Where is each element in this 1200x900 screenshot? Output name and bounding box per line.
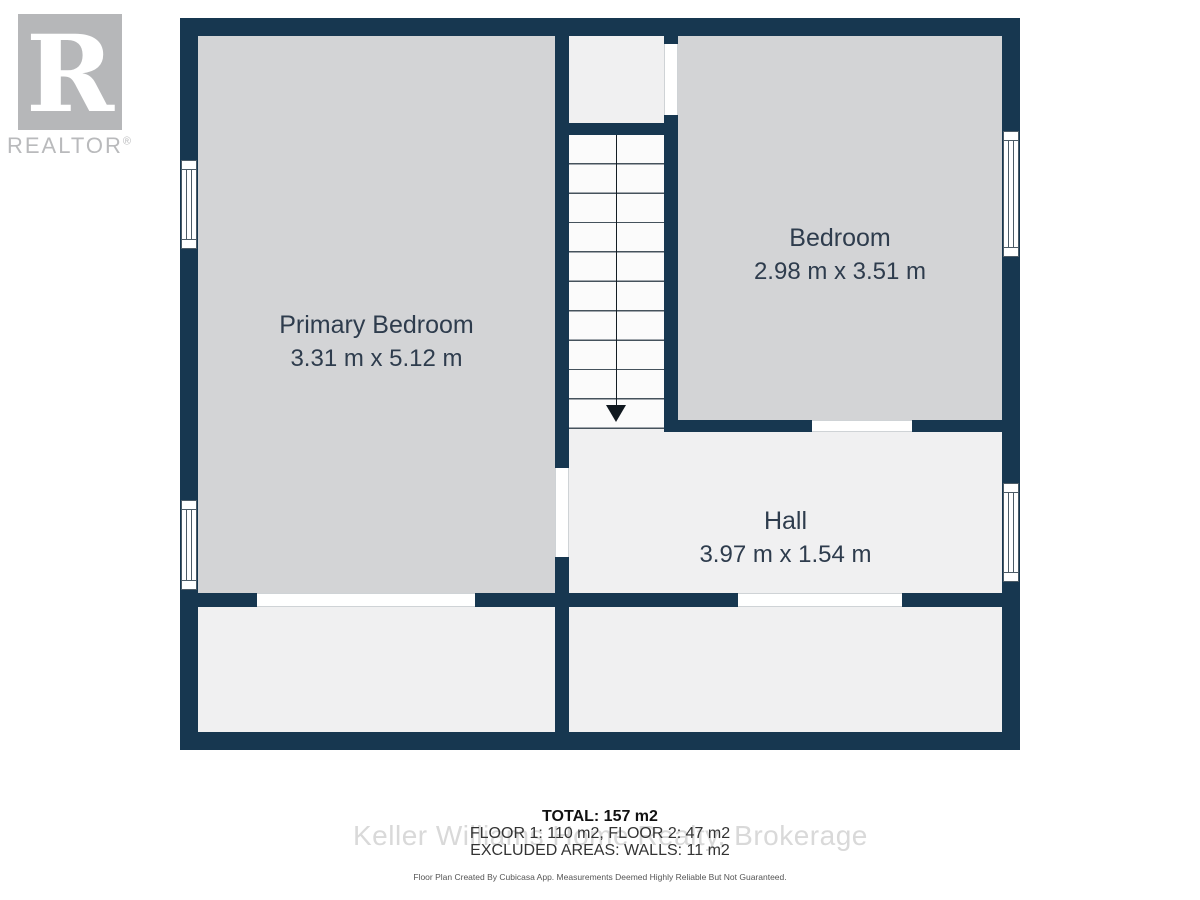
- window-right-lower: [1003, 483, 1019, 582]
- room-name: Hall: [569, 504, 1002, 538]
- registered-mark: ®: [123, 136, 131, 148]
- floor-plan: Primary Bedroom 3.31 m x 5.12 m Bedroom …: [180, 18, 1020, 750]
- window-left-upper: [181, 160, 197, 249]
- stair-center-line: [616, 135, 618, 407]
- wall-top: [180, 18, 1020, 36]
- wall-right: [1002, 18, 1020, 750]
- wall-hall-bottom-left: [568, 593, 738, 607]
- door-opening-bedroom: [812, 420, 912, 432]
- summary-total: TOTAL: 157 m2: [0, 808, 1200, 825]
- label-hall: Hall 3.97 m x 1.54 m: [569, 504, 1002, 572]
- wall-primary-right-lower: [555, 557, 569, 732]
- realtor-r-icon: R: [18, 14, 122, 130]
- room-name: Primary Bedroom: [198, 308, 555, 342]
- door-opening-primary-hall: [555, 468, 569, 557]
- wall-closet-bottom: [555, 123, 678, 135]
- realtor-r-glyph: R: [26, 14, 115, 130]
- wall-primary-bottom-left: [198, 593, 257, 607]
- room-dimensions: 3.97 m x 1.54 m: [569, 538, 1002, 572]
- staircase: [569, 135, 664, 429]
- room-dimensions: 2.98 m x 3.51 m: [678, 255, 1002, 289]
- room-dimensions: 3.31 m x 5.12 m: [198, 342, 555, 376]
- realtor-wordmark-text: REALTOR: [7, 133, 123, 158]
- stair-down-arrow-icon: [606, 405, 626, 422]
- room-closet: [569, 36, 664, 123]
- room-bottom-right: [569, 607, 1002, 732]
- summary-floors: FLOOR 1: 110 m2, FLOOR 2: 47 m2: [0, 825, 1200, 842]
- wall-stairs-right: [664, 115, 678, 432]
- wall-opening-primary-bottom: [257, 593, 475, 607]
- wall-hall-bottom-right: [902, 593, 1002, 607]
- wall-primary-bottom-right: [475, 593, 555, 607]
- label-primary-bedroom: Primary Bedroom 3.31 m x 5.12 m: [198, 308, 555, 376]
- disclaimer-text: Floor Plan Created By Cubicasa App. Meas…: [0, 872, 1200, 883]
- summary-block: TOTAL: 157 m2 FLOOR 1: 110 m2, FLOOR 2: …: [0, 808, 1200, 883]
- room-name: Bedroom: [678, 221, 1002, 255]
- window-right-upper: [1003, 131, 1019, 257]
- realtor-wordmark: REALTOR®: [7, 133, 187, 159]
- room-bottom-left: [198, 607, 555, 732]
- wall-bottom: [180, 732, 1020, 750]
- wall-bedroom-bottom-left: [678, 420, 812, 432]
- realtor-logo: R REALTOR®: [18, 14, 188, 135]
- wall-opening-hall-bottom: [738, 593, 902, 607]
- wall-left: [180, 18, 198, 750]
- wall-primary-right-upper: [555, 36, 569, 468]
- summary-excluded: EXCLUDED AREAS: WALLS: 11 m2: [0, 842, 1200, 859]
- wall-closet-right-stub: [664, 36, 678, 44]
- door-opening-closet: [664, 44, 678, 115]
- label-bedroom: Bedroom 2.98 m x 3.51 m: [678, 221, 1002, 289]
- window-left-lower: [181, 500, 197, 590]
- wall-bedroom-bottom-right: [912, 420, 1002, 432]
